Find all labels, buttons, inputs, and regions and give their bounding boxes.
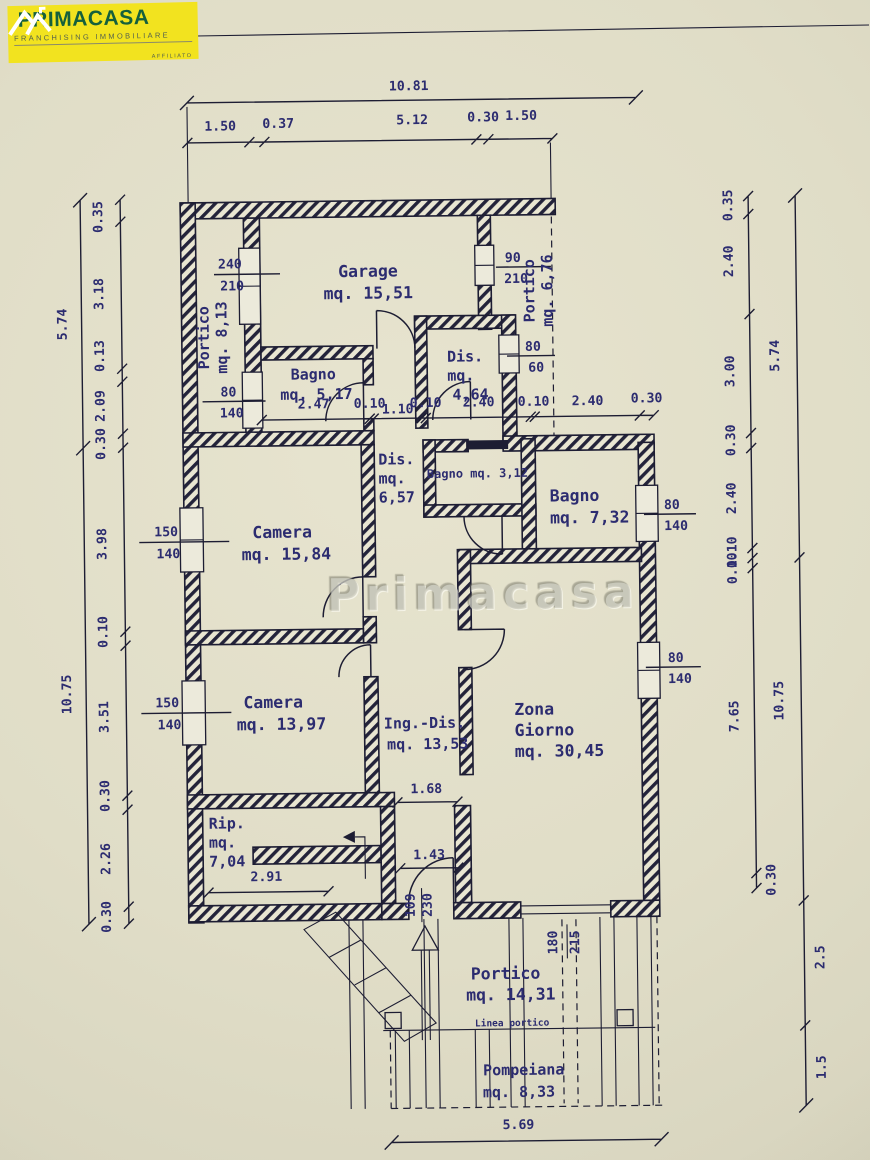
dim-row-6: 2.40: [572, 394, 604, 409]
win-80-140c-top: 80: [668, 651, 684, 666]
room-label-dis-2: Dis.: [378, 450, 414, 468]
room-area-pompeiana: mq. 8,33: [483, 1083, 555, 1102]
dim-top-seg-2: 5.12: [396, 113, 428, 128]
room-area-bagno-3: mq. 7,32: [550, 508, 630, 528]
dim-right-lo-2: 0.30: [764, 864, 779, 896]
dim-top-seg-0: 1.50: [204, 119, 236, 134]
dim-top-seg-4: 1.50: [505, 109, 537, 124]
win-150-140a-top: 150: [154, 525, 178, 540]
dim-entry-width: 1.43: [413, 848, 445, 863]
dim-left-lo-3: 0.30: [98, 780, 113, 812]
win-80-140b-top: 80: [664, 498, 680, 513]
dim-top-seg-3: 0.30: [467, 110, 499, 125]
win-150-140a-bot: 140: [156, 547, 180, 562]
room-label-pompeiana: Pompeiana: [483, 1060, 564, 1079]
room-mq-dis-1: mq.: [447, 366, 474, 384]
door-109-230-a: 109: [404, 893, 419, 917]
dim-row-5: 0.10: [518, 395, 550, 410]
room-label-portico-right: Portico: [520, 259, 539, 322]
room-area-zona: mq. 30,45: [515, 741, 605, 761]
dim-hall-width: 1.68: [410, 782, 442, 797]
win-240-210-top: 240: [218, 257, 242, 272]
dim-right-up-2: 3.00: [723, 355, 738, 387]
dim-left-lo-2: 3.51: [97, 701, 112, 733]
dim-row-7: 0.30: [631, 391, 663, 406]
room-label-portico-bottom: Portico: [471, 964, 541, 984]
door-180-215-a: 180: [546, 930, 561, 954]
dim-right-lo-0: 0.10: [725, 552, 740, 584]
room-mq-dis-2: mq.: [378, 469, 405, 487]
logo-affiliate: AFFILIATO: [152, 53, 193, 60]
dim-left-up-1: 3.18: [92, 278, 107, 310]
dim-right-lo-3: 2.5: [813, 945, 828, 969]
room-label-dis-1: Dis.: [447, 347, 483, 365]
win-90-210-top: 90: [505, 251, 521, 266]
label-linea-portico: Linea portico: [475, 1018, 550, 1030]
win-80-60-bot: 60: [528, 361, 544, 376]
dim-left-lo-1: 0.10: [96, 616, 111, 648]
dim-right-lo-1: 7.65: [727, 700, 742, 732]
room-area-portico-bottom: mq. 14,31: [466, 984, 556, 1004]
room-label-ing-dis: Ing.-Dis.: [384, 714, 465, 733]
dim-row-3: 0.10: [410, 396, 442, 411]
room-area-ing-dis: mq. 13,53: [387, 735, 468, 754]
room-area-camera-2: mq. 13,97: [237, 714, 327, 734]
dim-left-up-2: 0.13: [93, 340, 108, 372]
sheet-top-border: [196, 25, 869, 36]
room-label-bagno-3: Bagno: [550, 486, 600, 506]
dim-left-up-3: 2.09: [93, 390, 108, 422]
win-80-140a-bot: 140: [220, 406, 244, 421]
dim-top-seg-1: 0.37: [262, 117, 294, 132]
stairs: [304, 911, 437, 1043]
dim-left-up-0: 0.35: [91, 201, 106, 233]
room-label-zona-2: Giorno: [514, 720, 574, 740]
room-area-camera-1: mq. 15,84: [242, 544, 332, 564]
dim-top-total: 10.81: [389, 79, 429, 94]
dim-rip-width: 2.91: [250, 870, 282, 885]
win-150-140b-bot: 140: [158, 718, 182, 733]
room-area-dis-2: 6,57: [379, 488, 415, 506]
room-area-dis-1: 4,64: [452, 385, 488, 403]
win-80-140a-top: 80: [220, 385, 236, 400]
dim-left-up-4: 0.30: [94, 428, 109, 460]
dim-left-lo-4: 2.26: [99, 843, 114, 875]
dim-right-up-0: 0.35: [721, 189, 736, 221]
dim-left-lo-0: 3.98: [95, 528, 110, 560]
room-label-rip: Rip.: [209, 814, 245, 832]
room-label-zona-1: Zona: [514, 699, 554, 718]
dim-left-lo-5: 0.30: [100, 901, 115, 933]
primacasa-watermark: Primacasa: [326, 564, 640, 622]
door-109-230-b: 230: [421, 893, 436, 917]
room-area-garage: mq. 15,51: [323, 283, 413, 303]
dim-right-upper-total: 5.74: [768, 340, 783, 372]
room-mq-rip: mq.: [209, 833, 236, 851]
dim-left-upper-total: 5.74: [55, 308, 70, 340]
dim-bottom-total: 5.69: [502, 1118, 534, 1133]
floor-plan-photo: 10.81 1.50 0.37 5.12 0.30 1.50 5.74 0.35…: [0, 0, 870, 1160]
door-180-215-b: 215: [568, 930, 583, 954]
dim-right-up-3: 0.30: [724, 424, 739, 456]
room-area-rip: 7,04: [209, 852, 245, 870]
dim-right-up-1: 2.40: [722, 245, 737, 277]
room-label-camera-1: Camera: [252, 522, 312, 542]
win-80-60-top: 80: [525, 340, 541, 355]
win-240-210-bot: 210: [220, 279, 244, 294]
dim-right-up-4: 2.40: [725, 482, 740, 514]
room-label-garage: Garage: [338, 261, 398, 281]
dim-left-lower-total: 10.75: [60, 674, 75, 714]
primacasa-logo: PRIMACASA FRANCHISING IMMOBILIARE AFFILI…: [7, 2, 198, 63]
win-80-140b-bot: 140: [664, 519, 688, 534]
room-label-bagno-2: Bagno mq. 3,12: [427, 466, 528, 481]
room-area-bagno-1: mq. 5,17: [280, 385, 352, 404]
dim-right-lo-4: 1.5: [815, 1055, 830, 1079]
win-80-140c-bot: 140: [668, 672, 692, 687]
dim-right-lower-total: 10.75: [772, 681, 787, 721]
win-150-140b-top: 150: [155, 696, 179, 711]
room-area-portico-left: mq. 8,13: [212, 301, 231, 373]
room-area-portico-right: mq. 6,76: [538, 254, 557, 326]
room-label-bagno-1: Bagno: [291, 365, 336, 384]
room-label-camera-2: Camera: [243, 693, 303, 713]
room-label-portico-left: Portico: [194, 306, 213, 369]
